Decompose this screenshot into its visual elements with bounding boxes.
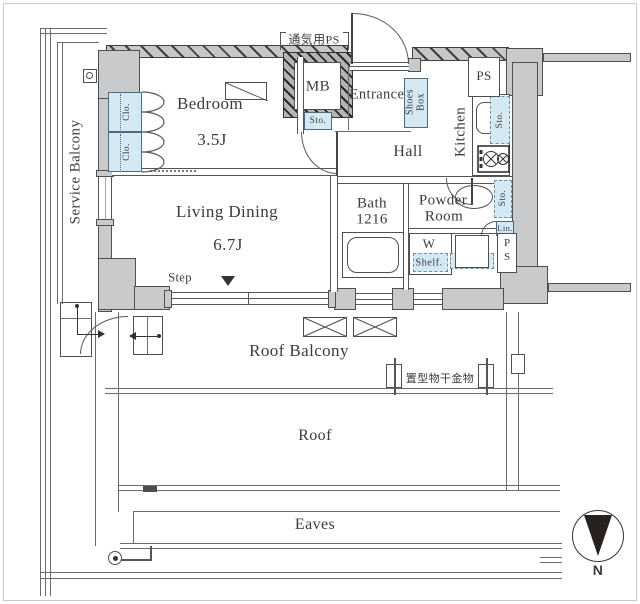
washing-machine [455, 235, 489, 268]
exterior-line [40, 33, 107, 34]
window-cap [328, 290, 336, 308]
bedroom-hall-wall [297, 57, 304, 134]
balcony-hatch-box [353, 317, 397, 337]
entrance-step-line [335, 131, 411, 132]
closet-rod-dotted [120, 134, 121, 170]
roof-access-block [143, 486, 157, 492]
closet-rod-dotted [120, 94, 121, 130]
bath-window [356, 293, 392, 305]
label-bath: Bath [357, 196, 387, 213]
label-linen: Lin. [497, 223, 513, 233]
vent-ps-bracket [343, 32, 349, 50]
evacuation-arrow-head [129, 332, 136, 340]
label-powder-room: Powder [419, 193, 467, 210]
label-ps-bottom: PS [501, 237, 513, 265]
right-edge-tick [540, 562, 562, 563]
drain-circle [86, 72, 93, 79]
label-storage-kitchen: Sto. [495, 112, 505, 129]
balcony-hatch-box [303, 317, 347, 337]
label-storage-powder: Sto. [498, 190, 508, 207]
bathtub-inner [347, 237, 399, 273]
service-balcony-window [98, 177, 112, 219]
floor-plan: Service Balcony Bedroom 3.5J Clo. Clo. 通… [0, 0, 640, 604]
label-ps-top: PS [476, 68, 491, 84]
evacuation-arrow-line [136, 336, 159, 337]
service-balcony-edge [57, 42, 99, 43]
bottom-wall-segment [392, 288, 414, 310]
exterior-line [45, 28, 46, 596]
label-closet: Clo. [122, 103, 132, 121]
living-balcony-window [172, 292, 328, 305]
label-vent-ps: 通気用PS [288, 31, 339, 48]
powder-door-leaf [471, 178, 473, 205]
window-cap [96, 219, 114, 226]
bedroom-door-leaf [336, 132, 338, 175]
label-living-size: 6.7J [213, 235, 242, 255]
drain-pipe [506, 312, 507, 490]
partition-board-line [60, 318, 92, 319]
balcony-entry-marker [221, 276, 235, 286]
label-entrance: Entrance [350, 87, 405, 104]
gutter-line [120, 559, 152, 561]
label-shoes-box: Shoes Box [406, 79, 427, 125]
label-step: Step [168, 271, 192, 286]
roof-drain-center [113, 556, 118, 561]
utility-window [414, 293, 442, 305]
label-eaves: Eaves [295, 516, 335, 534]
label-closet: Clo. [122, 143, 132, 161]
roof-bottom-line [118, 490, 560, 491]
label-service-balcony: Service Balcony [68, 120, 85, 225]
window-cap [164, 290, 172, 308]
label-roof-balcony: Roof Balcony [249, 341, 349, 361]
evacuation-arrow-line [77, 306, 78, 334]
service-balcony-edge [57, 42, 58, 304]
label-north: N [593, 562, 604, 578]
living-bath-wall [330, 176, 338, 292]
eaves-top-line [133, 511, 560, 512]
plot-bottom-line [40, 578, 562, 579]
laundry-pole-fixture [478, 364, 494, 388]
eaves-bottom-line [120, 543, 562, 544]
party-wall-stub [548, 283, 631, 292]
entrance-sill-cap [408, 58, 421, 72]
laundry-pole-line [486, 358, 488, 395]
pipe-fitting [511, 354, 525, 374]
hall-bath-wall [338, 176, 512, 184]
plot-bottom-line [40, 572, 562, 573]
drain-pipe [518, 312, 519, 490]
right-edge-tick [540, 557, 562, 558]
label-bedroom-size: 3.5J [197, 130, 226, 150]
label-powder-room: Room [425, 209, 463, 226]
label-washer: W [423, 236, 436, 252]
label-roof: Roof [298, 427, 332, 445]
gutter-line [150, 546, 152, 560]
label-kitchen: Kitchen [453, 107, 470, 157]
roof-bottom-line [118, 485, 560, 486]
label-laundry-fixture: 置型物干金物 [406, 370, 474, 386]
label-shelf: Shelf. [415, 258, 442, 269]
bottom-wall-segment [442, 288, 504, 310]
eaves-bottom-line [120, 548, 562, 549]
compass-needle [584, 515, 612, 556]
label-storage-mb: Sto. [310, 116, 327, 126]
label-hall: Hall [393, 143, 422, 161]
label-bath-size: 1216 [356, 212, 388, 229]
exterior-line [50, 28, 51, 596]
exterior-line [40, 28, 41, 596]
window-center-tick [248, 292, 249, 305]
exterior-line [40, 28, 107, 29]
bottom-corner-wall [98, 258, 136, 310]
stove-icon [477, 145, 510, 173]
vent-ps-bracket [280, 32, 286, 50]
eaves-left-line [133, 511, 134, 544]
party-wall-stub [543, 53, 631, 62]
label-meter-box: MB [306, 79, 330, 96]
label-living-dining: Living Dining [176, 202, 278, 222]
laundry-pole-line [394, 358, 396, 395]
label-bedroom: Bedroom [177, 94, 243, 114]
closet-folding-doors [141, 91, 167, 173]
service-balcony-edge [62, 42, 63, 304]
laundry-pole-fixture [386, 364, 402, 388]
